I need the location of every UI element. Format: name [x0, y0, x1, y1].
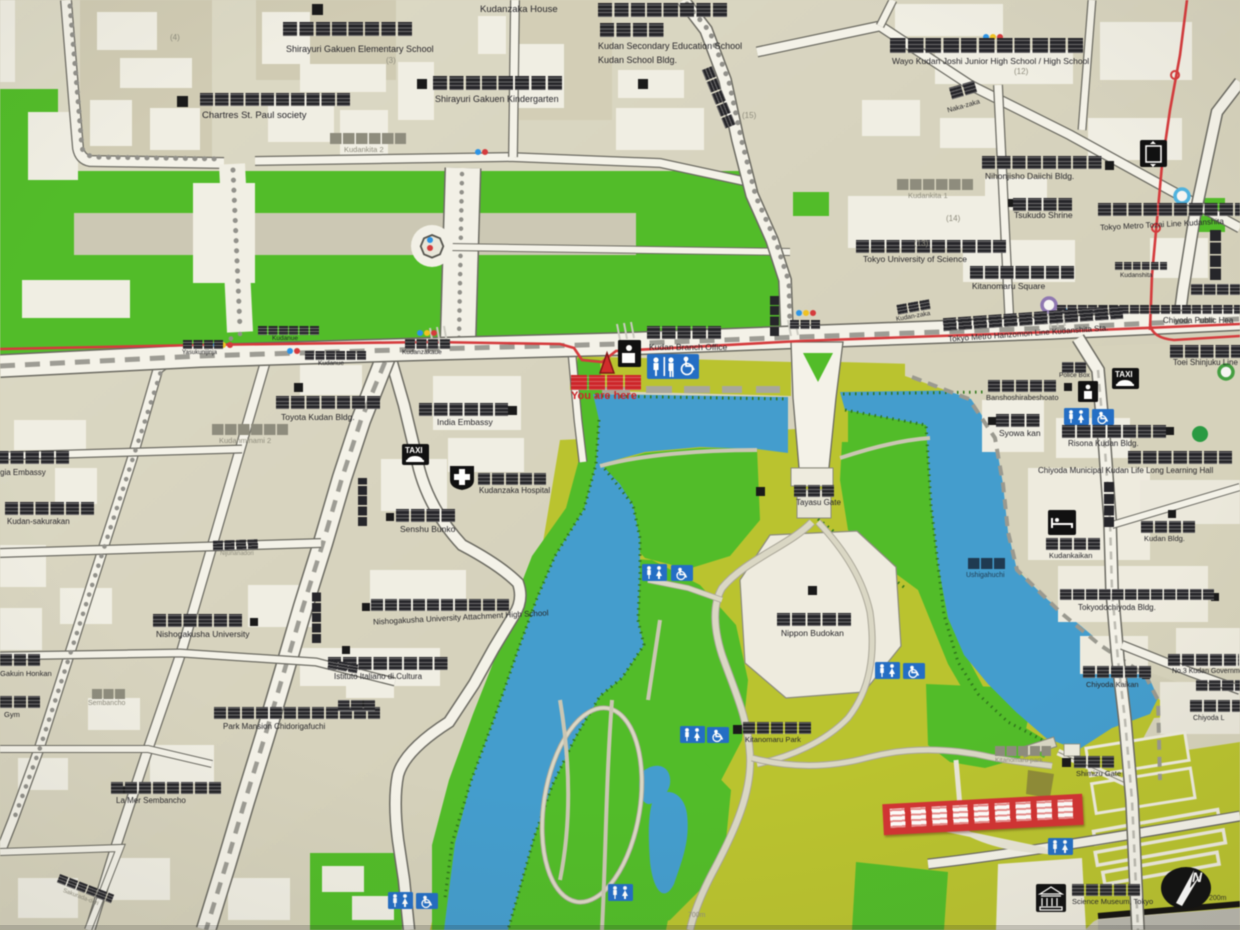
svg-text:N: N [1192, 869, 1203, 885]
